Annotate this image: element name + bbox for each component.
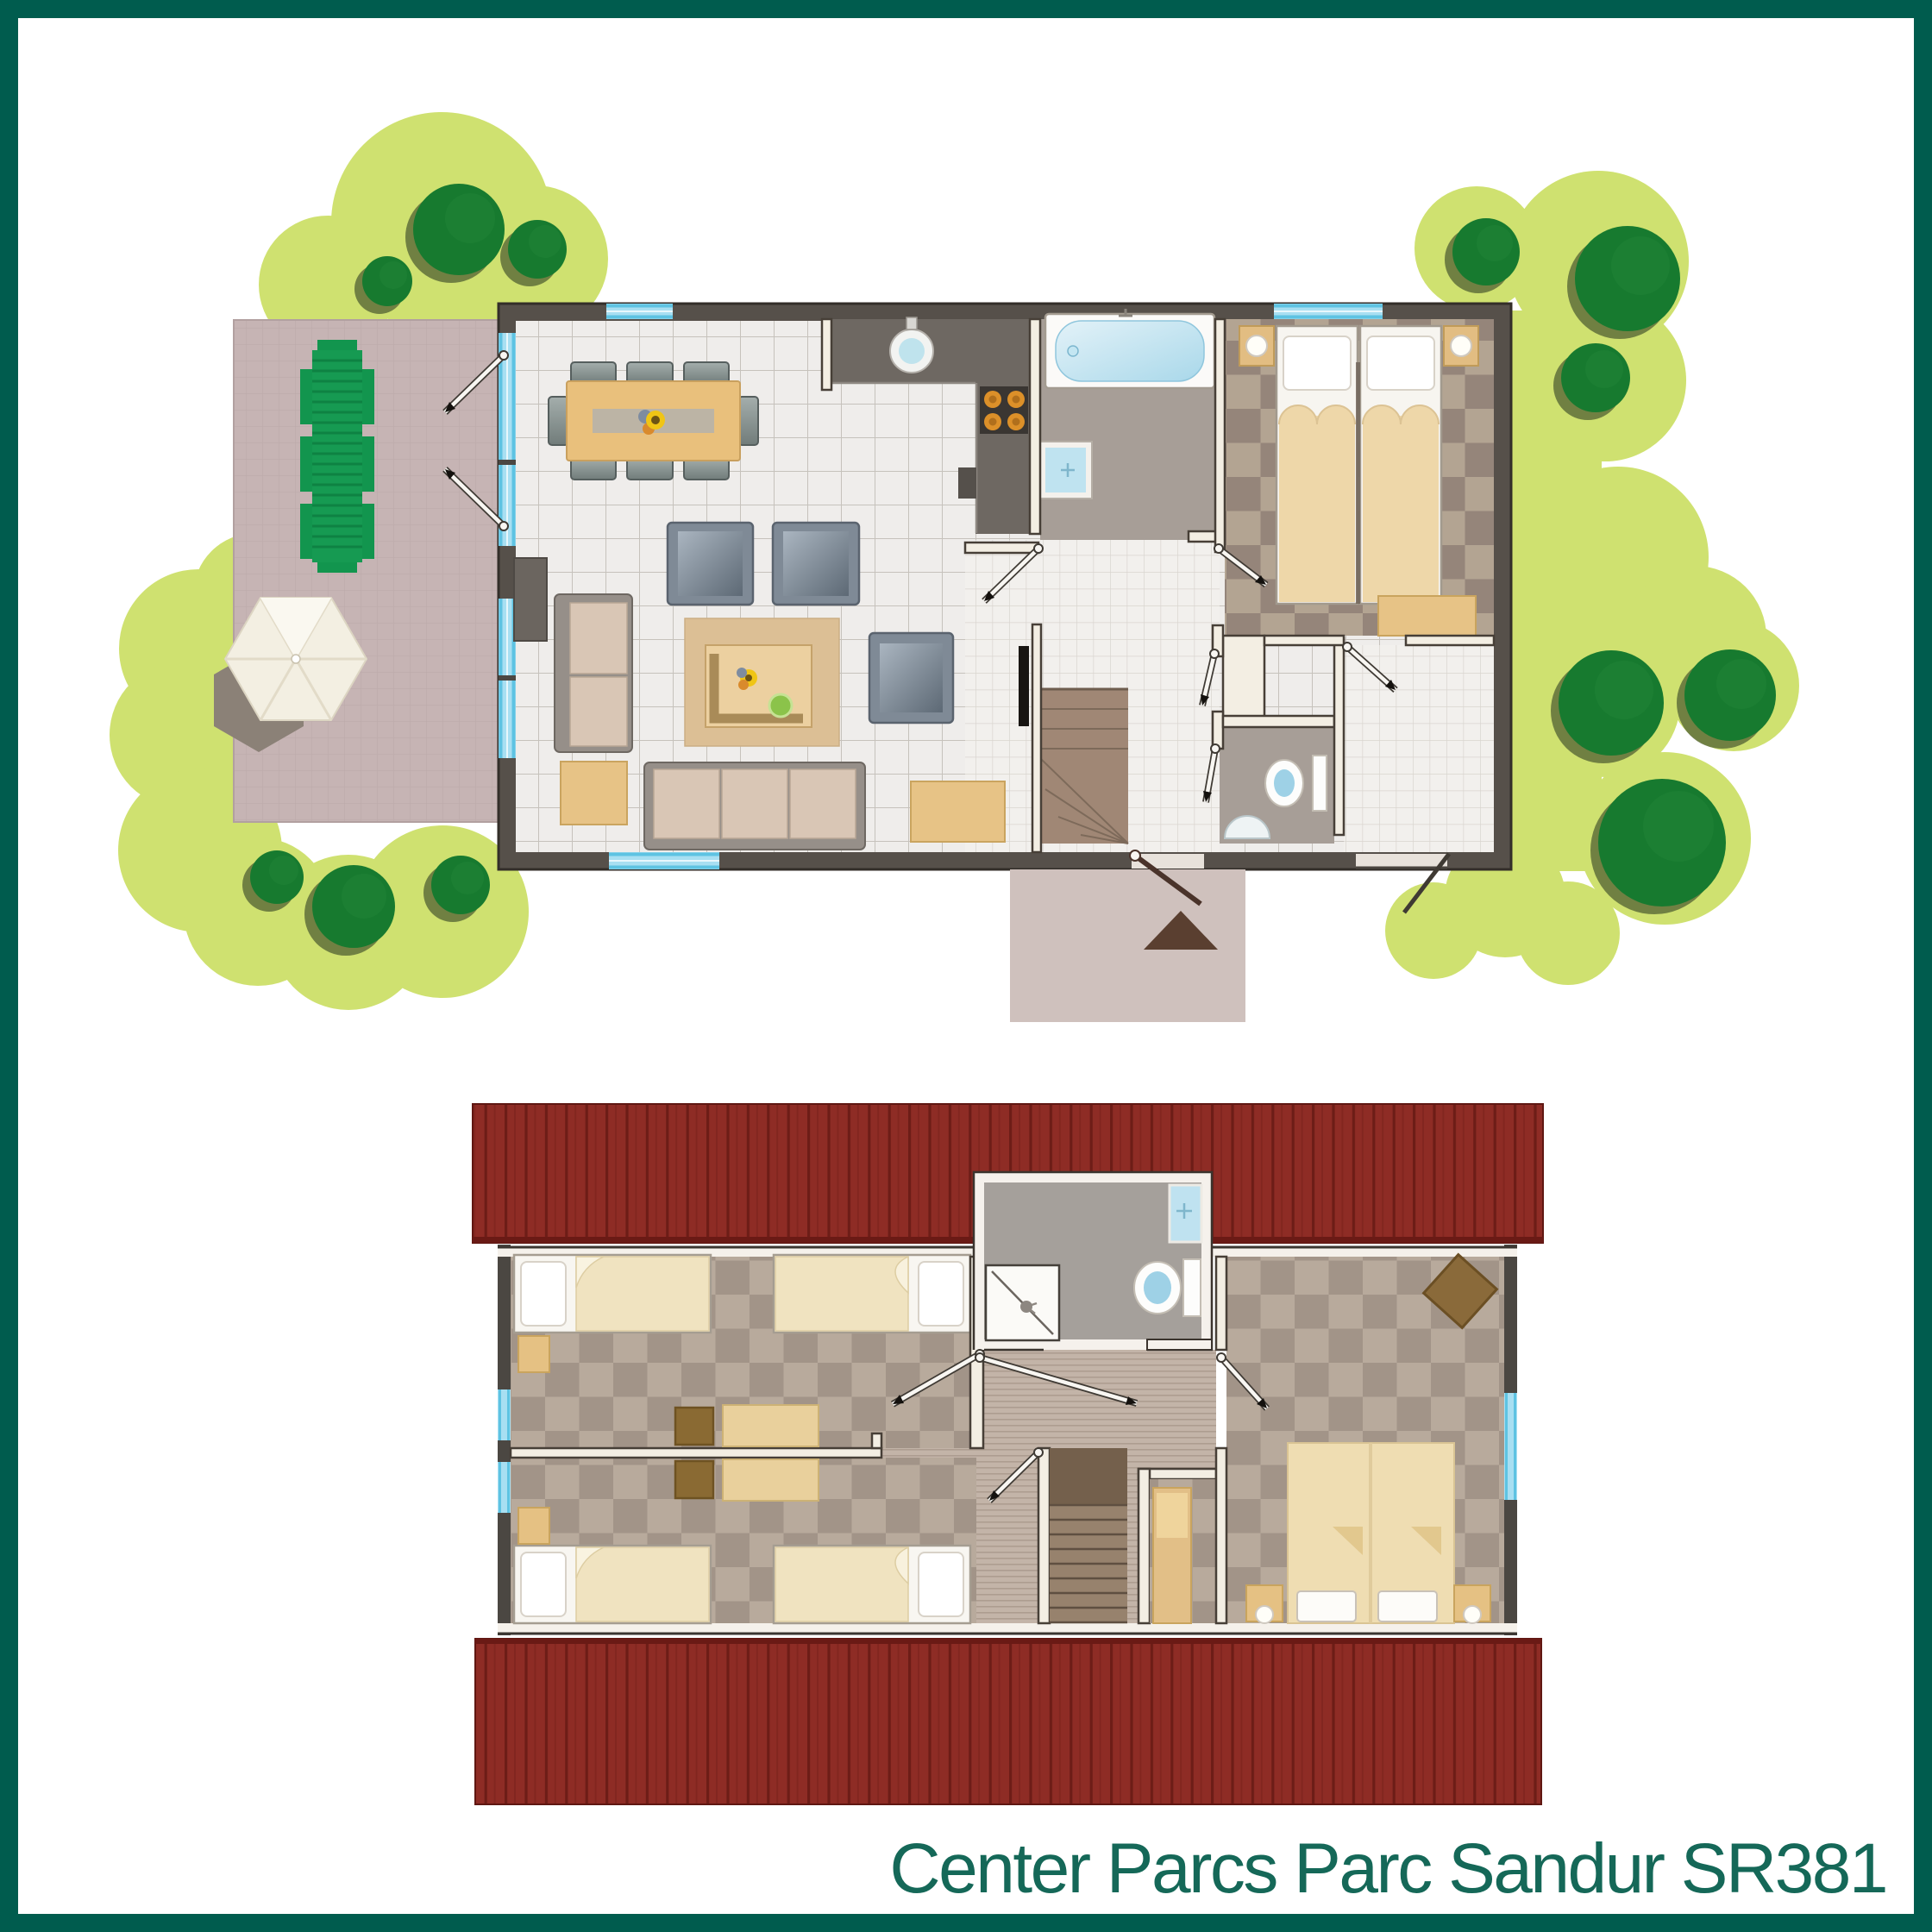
svg-text:Center Parcs Parc Sandur SR381: Center Parcs Parc Sandur SR381 [889,1829,1886,1908]
